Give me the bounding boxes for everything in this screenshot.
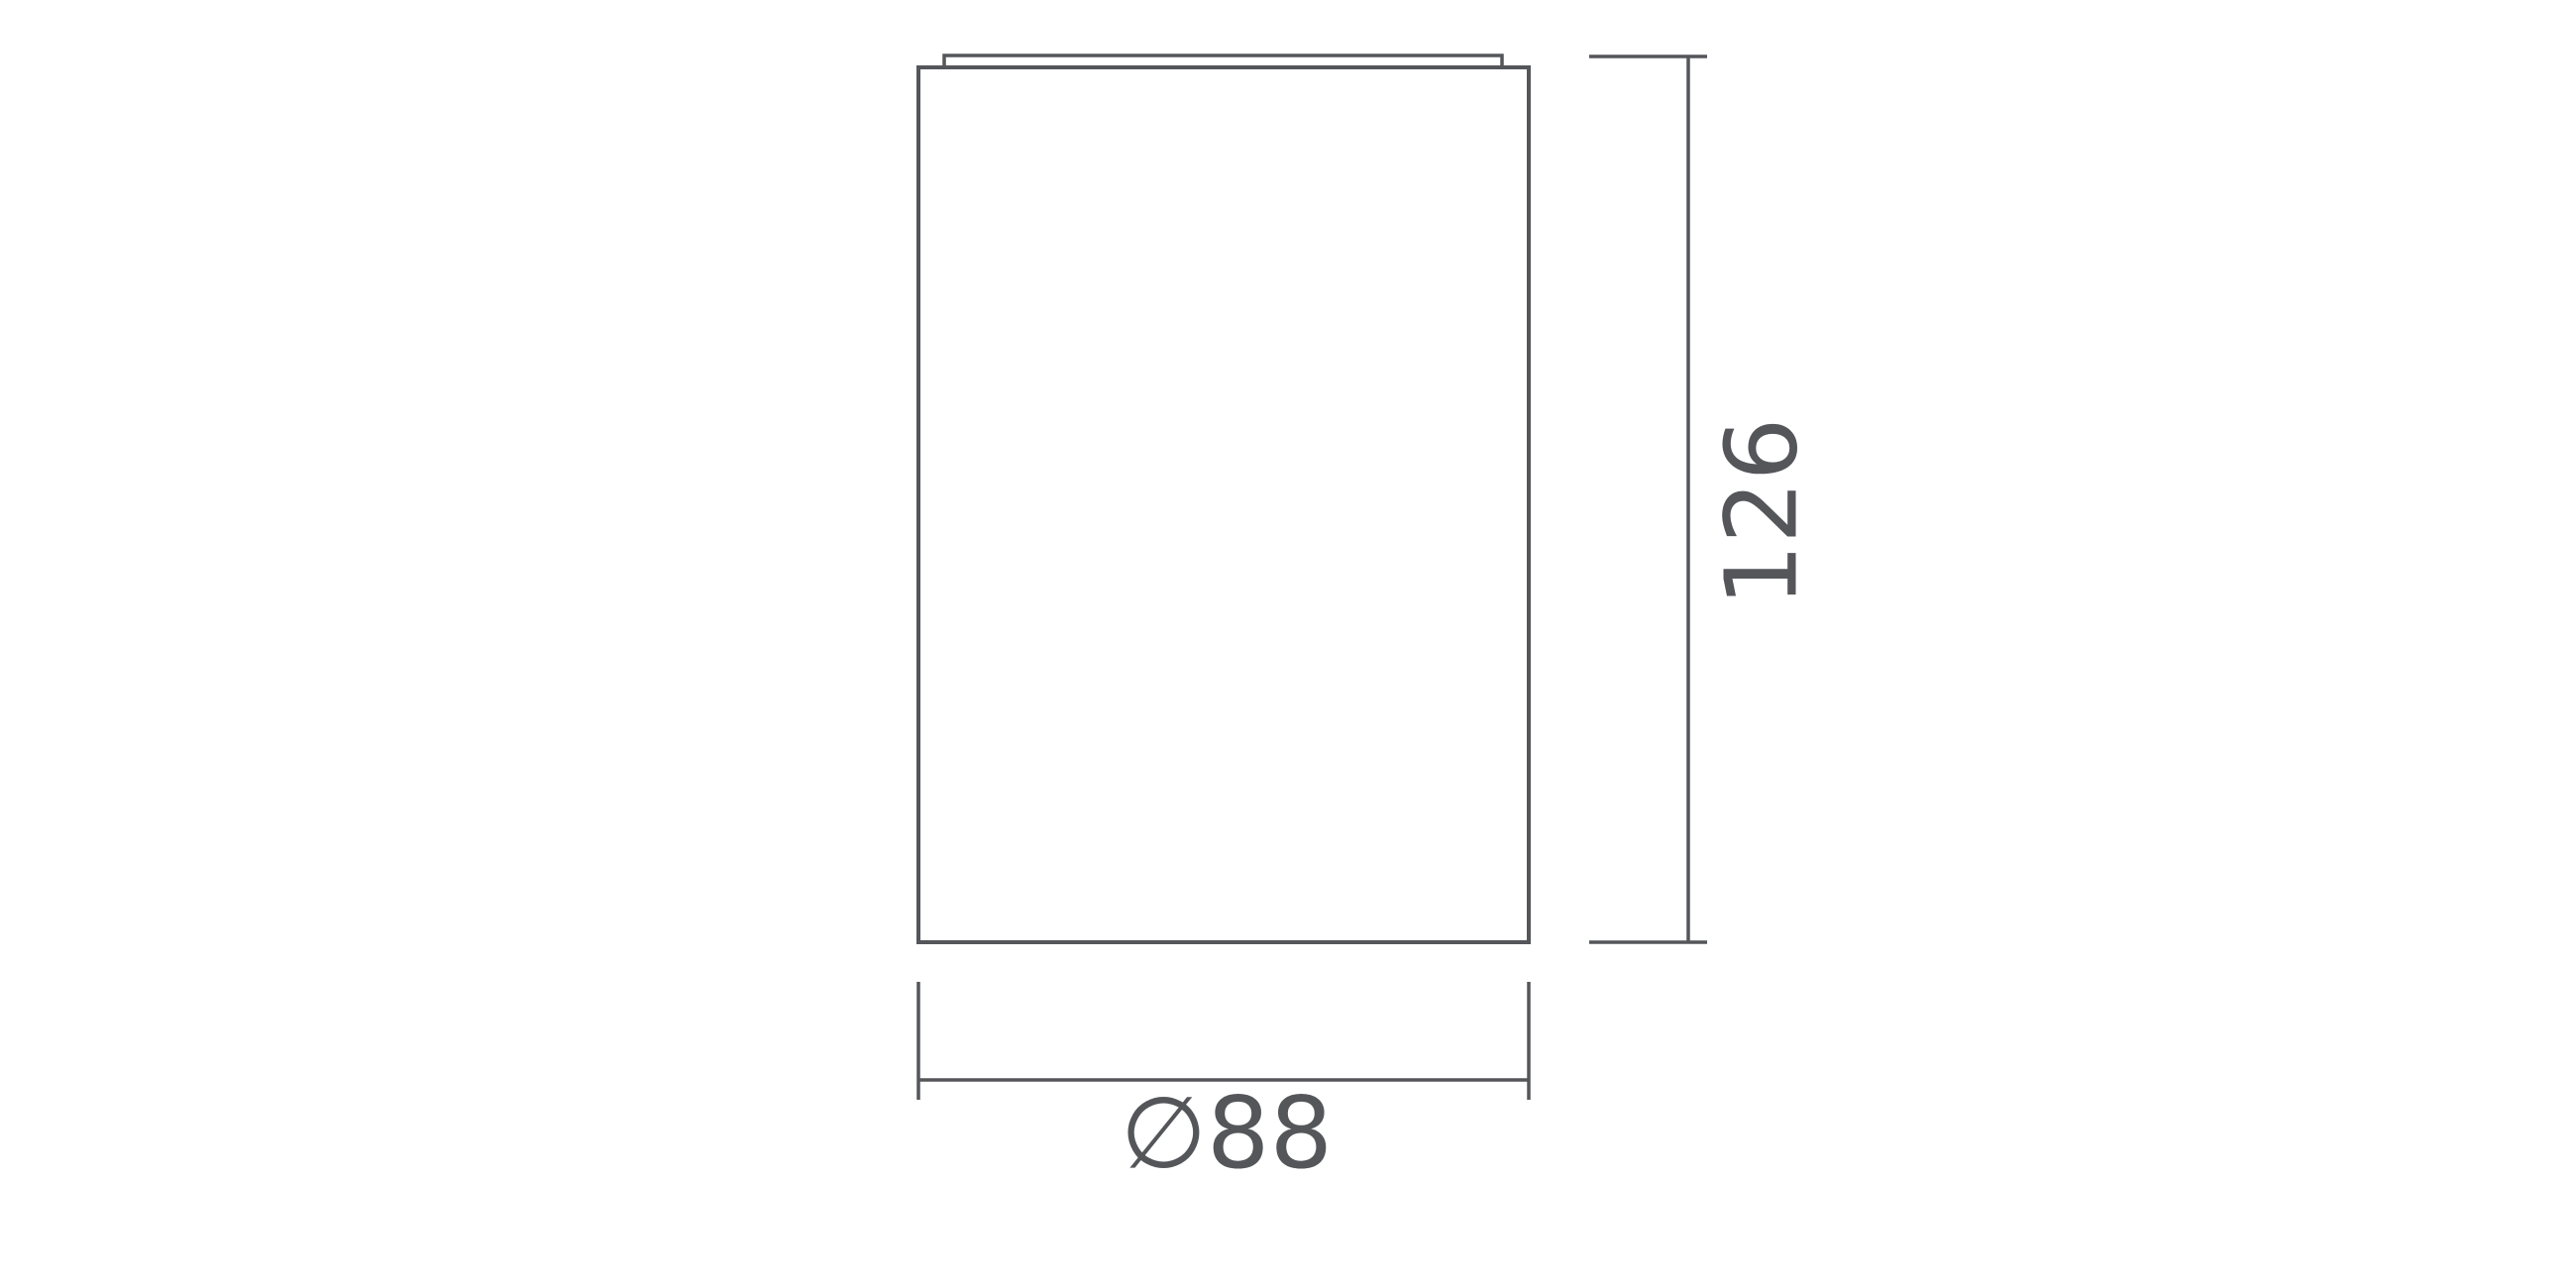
height-dimension-label: 126 [1704, 418, 1820, 607]
drawing-canvas: 126 ∅88 [0, 0, 2576, 1288]
fixture-body-outline [918, 67, 1529, 942]
diameter-dimension-label: ∅88 [1121, 1075, 1333, 1191]
dimension-drawing: 126 ∅88 [0, 0, 2576, 1288]
